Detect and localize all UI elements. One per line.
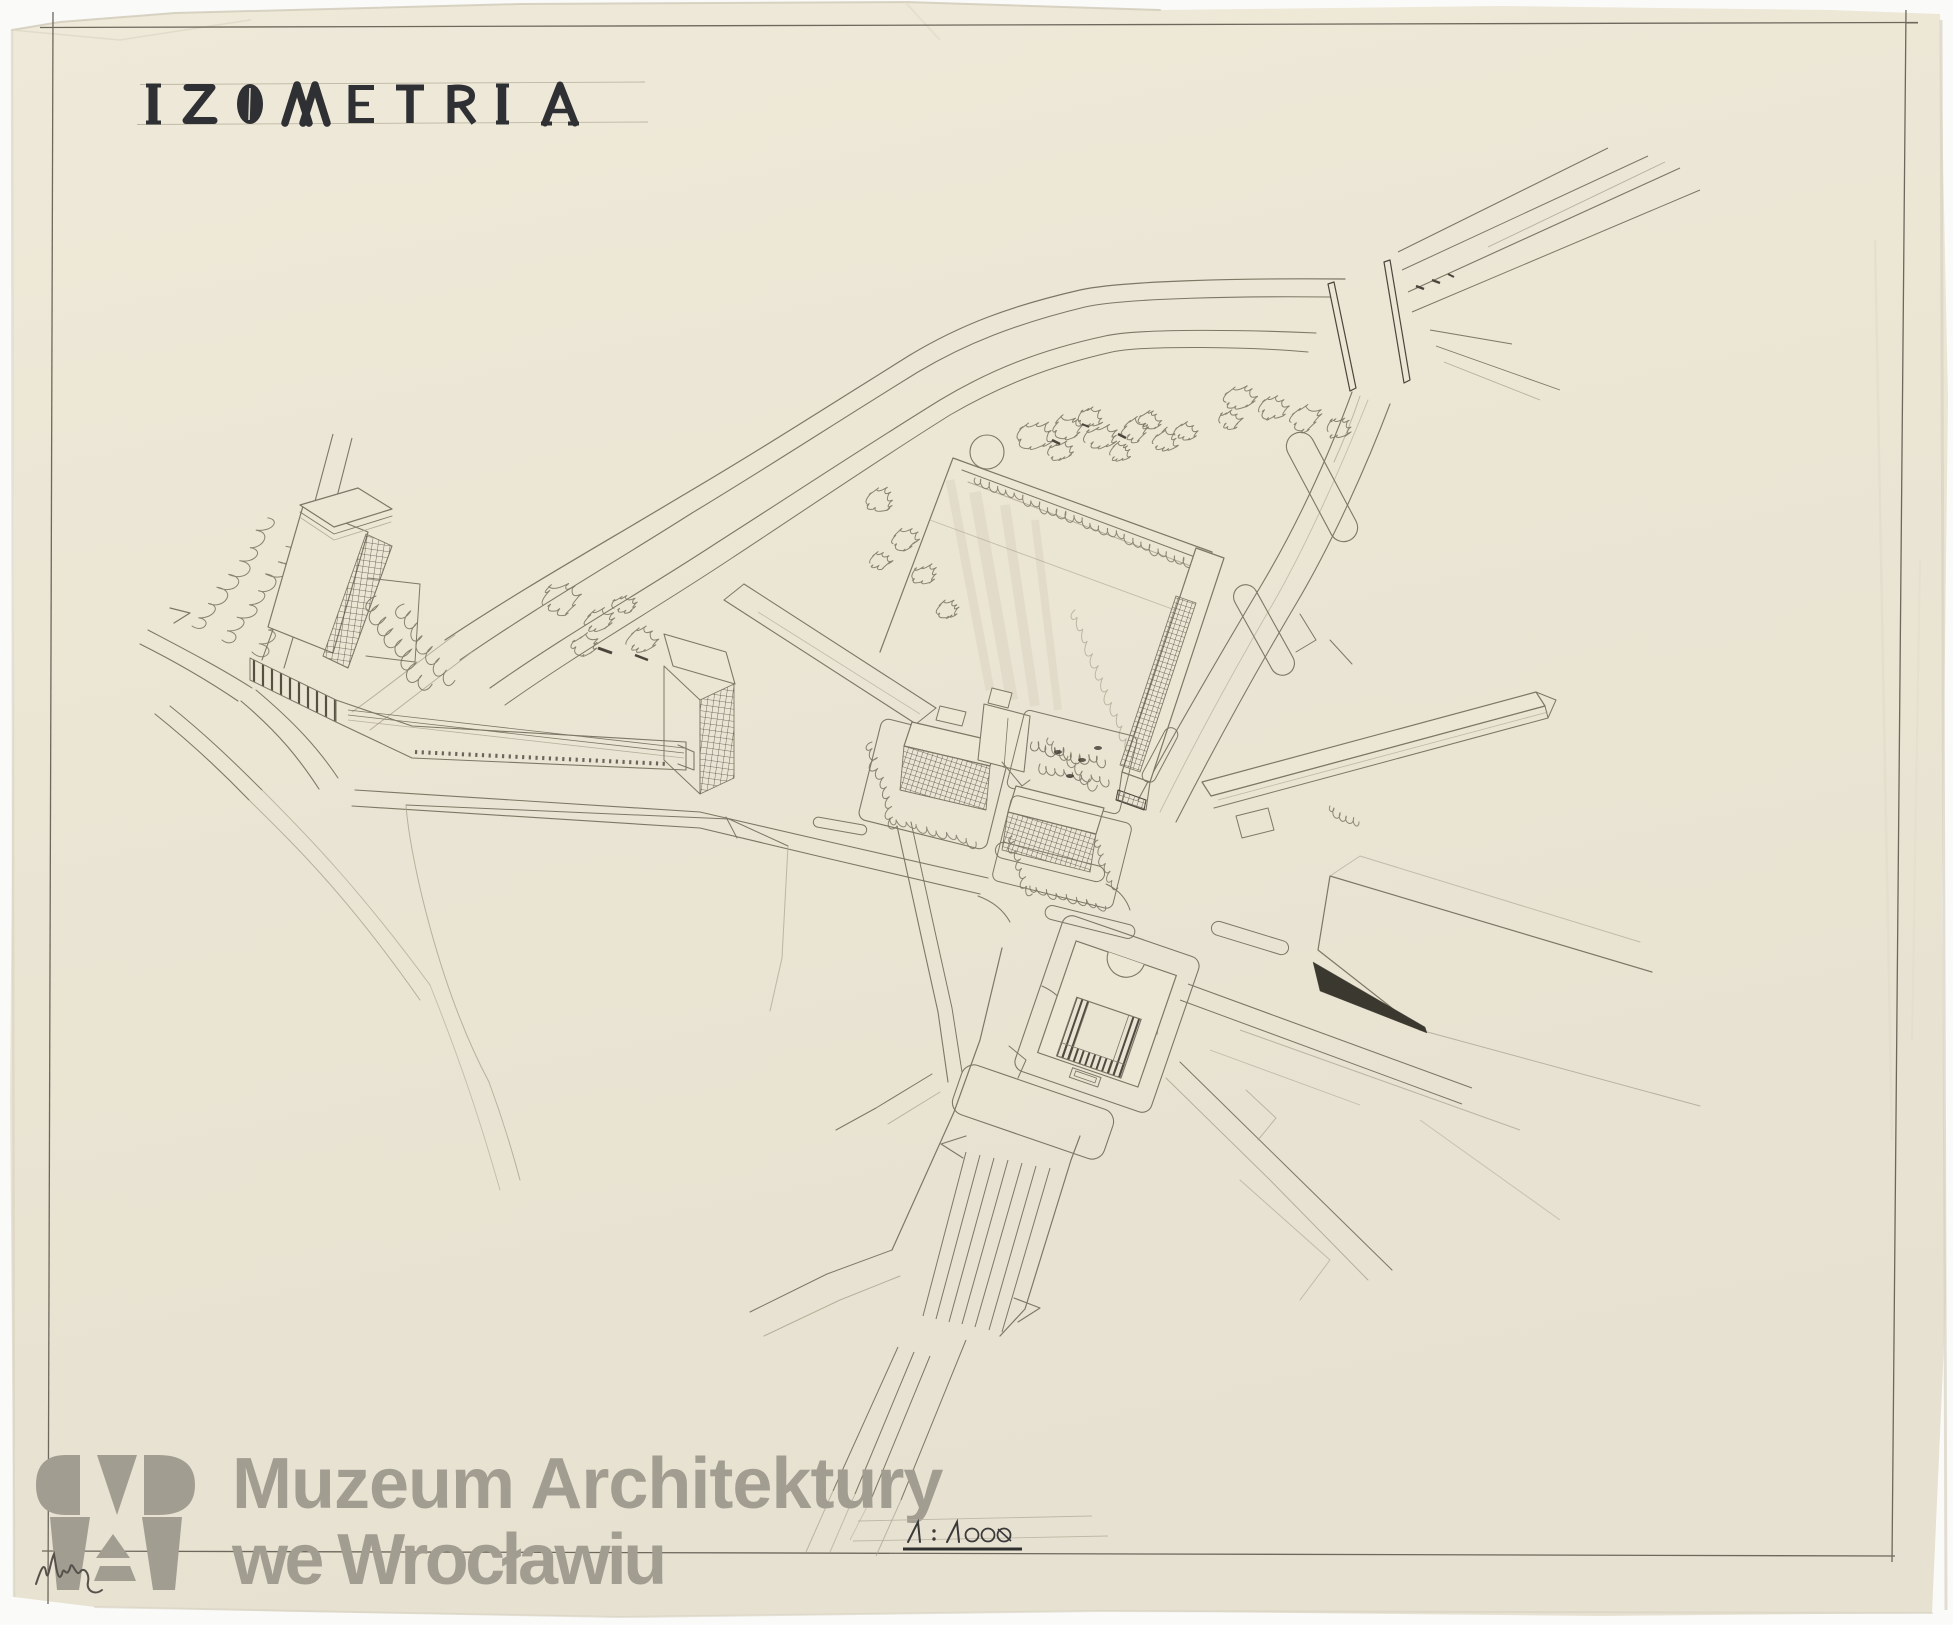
- svg-text:Muzeum Architektury: Muzeum Architektury: [232, 1444, 943, 1524]
- svg-text:we Wrocławiu: we Wrocławiu: [231, 1520, 664, 1600]
